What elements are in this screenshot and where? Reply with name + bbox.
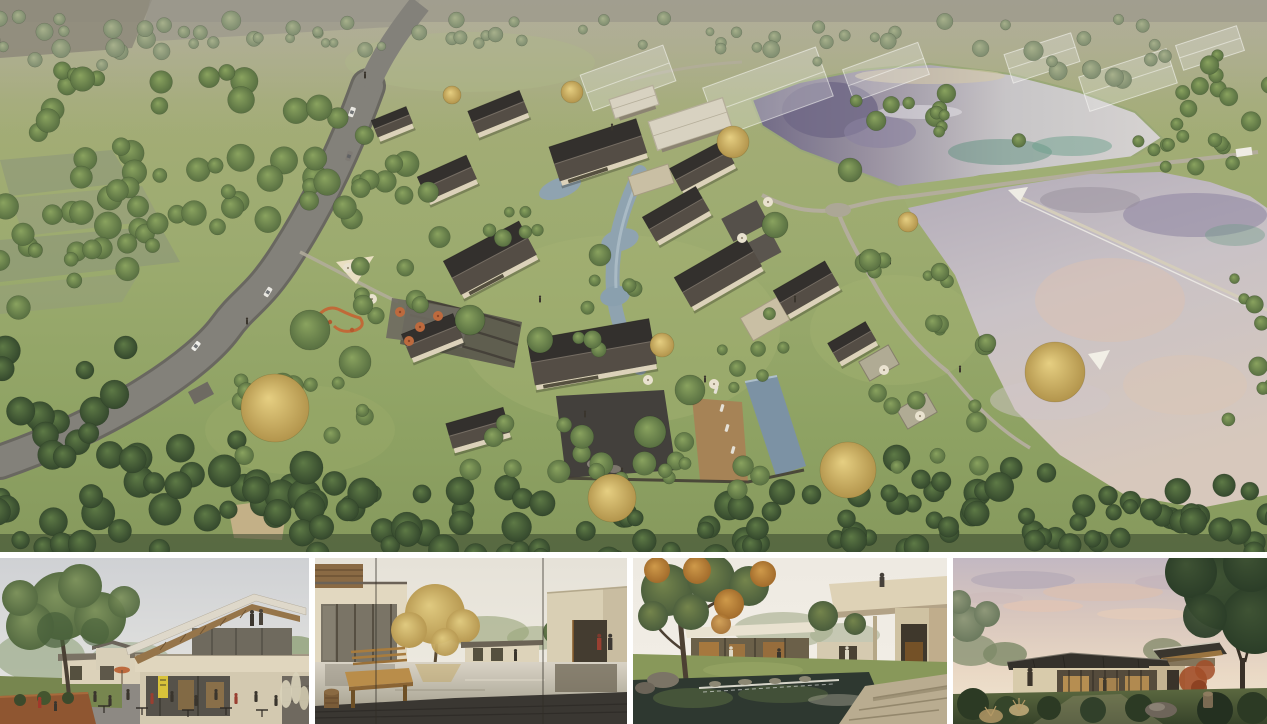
feature-tree <box>838 158 862 182</box>
thumbnail-strip <box>0 558 1267 724</box>
feature-tree <box>634 416 666 448</box>
main-aerial-render <box>0 0 1267 552</box>
architectural-render-collage <box>0 0 1267 724</box>
right-building <box>547 586 627 670</box>
foreground-garden <box>953 688 1267 724</box>
golden-tree <box>650 333 674 357</box>
thumbnail-courtyard-pool-view <box>315 558 627 724</box>
person <box>584 413 586 418</box>
person <box>364 74 366 79</box>
feature-tree <box>931 263 949 281</box>
feature-tree <box>859 249 881 271</box>
thumbnail-street-cafe-view <box>0 558 309 724</box>
feature-tree <box>675 375 705 405</box>
person <box>959 368 961 373</box>
golden-tree <box>820 442 876 498</box>
golden-tree <box>1025 342 1085 402</box>
golden-tree <box>561 81 583 103</box>
person <box>704 378 706 383</box>
feature-tree <box>978 334 996 352</box>
feature-tree <box>455 305 485 335</box>
person <box>539 298 541 303</box>
golden-tree <box>898 212 918 232</box>
thumbnail-dusk-pavilion-view <box>953 558 1267 724</box>
feature-tree <box>589 244 611 266</box>
person <box>611 126 613 131</box>
feature-tree <box>762 212 788 238</box>
golden-tree <box>717 126 749 158</box>
person <box>794 298 796 303</box>
feature-tree <box>339 346 371 378</box>
golden-tree <box>241 374 309 442</box>
stone-wall <box>280 672 309 724</box>
yellow-sign <box>158 676 168 698</box>
golden-tree <box>588 474 636 522</box>
golden-tree <box>443 86 461 104</box>
feature-tree <box>527 327 553 353</box>
thumbnail-garden-waterfall-view <box>633 558 947 724</box>
person <box>246 320 248 325</box>
feature-tree <box>290 310 330 350</box>
corten-planter <box>0 691 96 724</box>
